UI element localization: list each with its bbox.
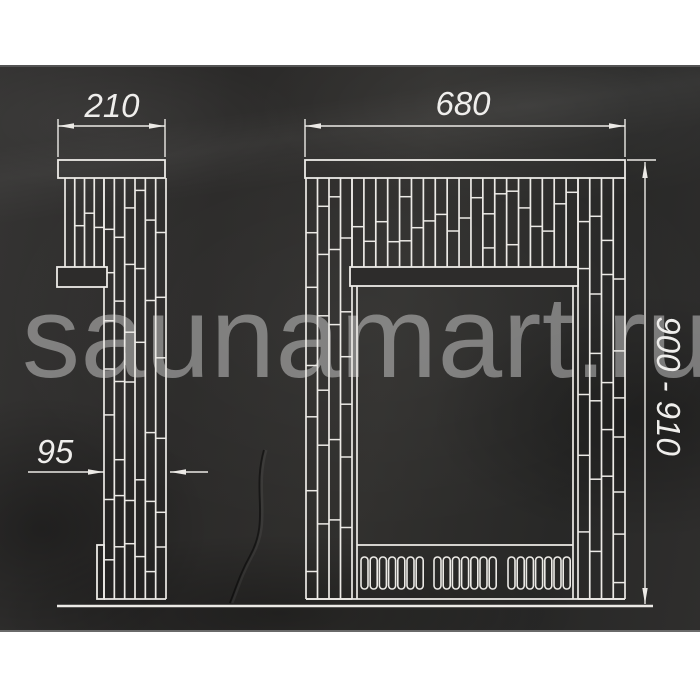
watermark-text: saunamart.ru — [22, 270, 700, 404]
drawing-panel: saunamart.ru — [0, 65, 700, 632]
screenshot-root: saunamart.ru 210 680 95 900 - 910 — [0, 0, 700, 700]
dim-label-height-range: 900 - 910 — [647, 306, 689, 466]
dim-label-front-width: 680 — [413, 86, 513, 122]
dim-label-side-lower-depth: 95 — [18, 434, 92, 470]
dim-label-side-width: 210 — [62, 88, 162, 124]
